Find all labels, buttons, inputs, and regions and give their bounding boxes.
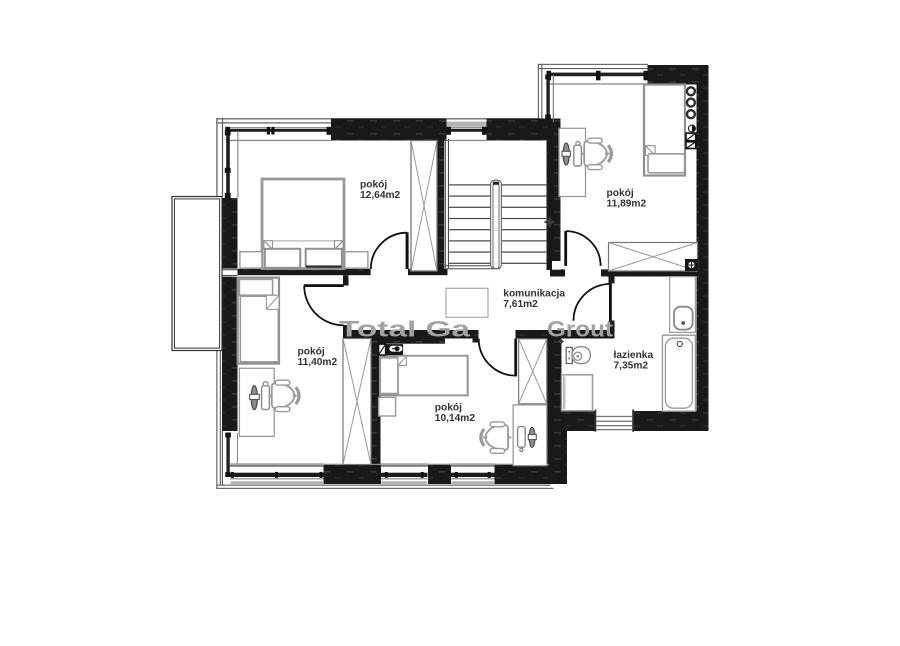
svg-text:pokój: pokój <box>435 403 462 414</box>
svg-text:11,40m2: 11,40m2 <box>298 357 338 368</box>
svg-text:7,61m2: 7,61m2 <box>503 299 538 310</box>
svg-text:7,35m2: 7,35m2 <box>614 360 649 371</box>
svg-text:pokój: pokój <box>360 180 387 191</box>
svg-text:11,89m2: 11,89m2 <box>607 199 647 210</box>
svg-text:pokój: pokój <box>607 188 634 199</box>
svg-text:łazienka: łazienka <box>614 350 654 361</box>
svg-text:komunikacja: komunikacja <box>503 288 565 299</box>
svg-text:Total Ga: Total Ga <box>339 317 471 342</box>
svg-text:10,14m2: 10,14m2 <box>435 413 476 424</box>
svg-text:pokój: pokój <box>298 347 325 358</box>
svg-text:Grout: Grout <box>547 317 614 342</box>
svg-text:12,64m2: 12,64m2 <box>360 190 401 201</box>
